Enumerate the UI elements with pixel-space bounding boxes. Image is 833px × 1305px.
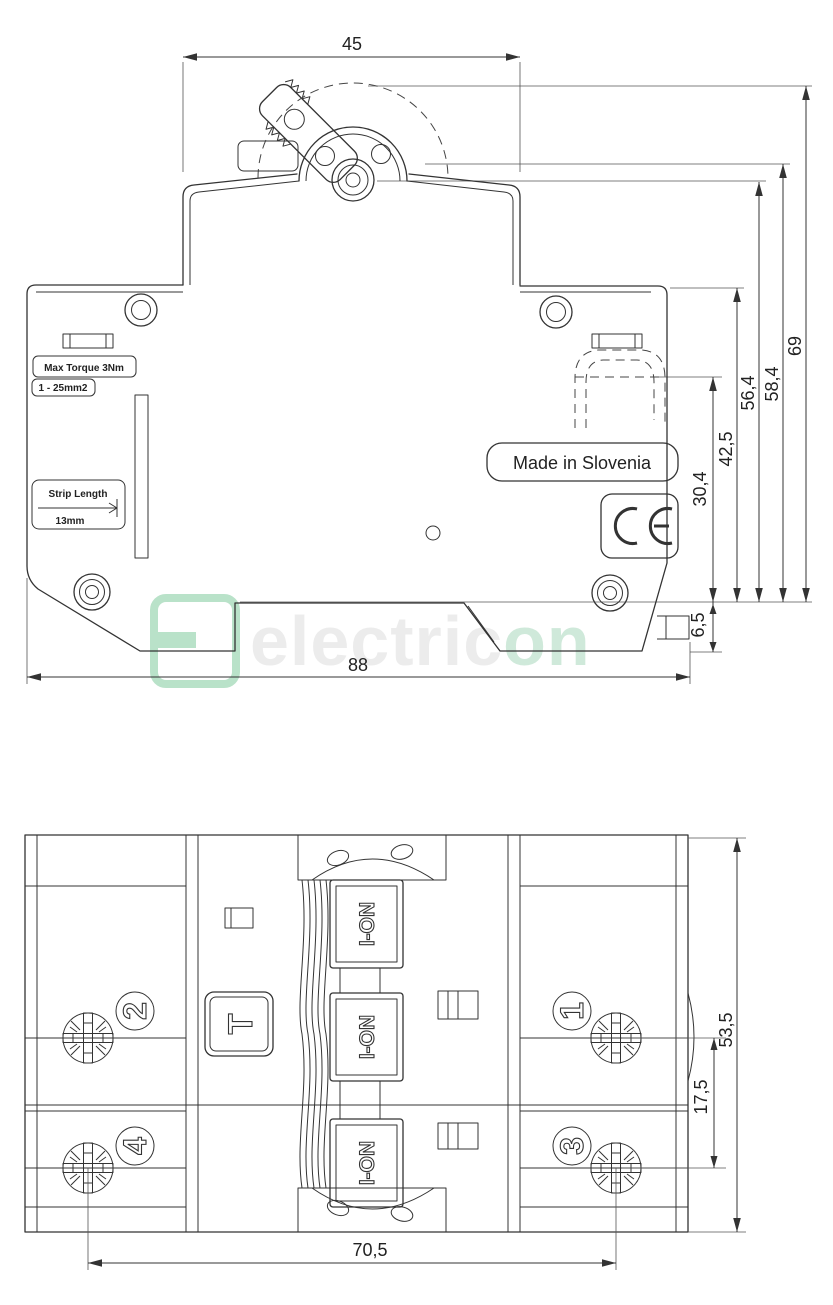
dim-17-label: 17,5 <box>691 1079 711 1114</box>
dim-row-offset: 17,5 <box>691 1038 718 1168</box>
dim-58-label: 58,4 <box>762 366 782 401</box>
dim-88-label: 88 <box>348 655 368 675</box>
test-button-label: T <box>222 1013 260 1034</box>
top-terminal-block <box>298 835 446 880</box>
wire-range-label: 1 - 25mm2 <box>39 383 88 394</box>
side-slot <box>135 395 148 558</box>
dim-module-width: 45 <box>183 34 520 61</box>
dimension-drawing: Max Torque 3Nm 1 - 25mm2 Strip Length 13… <box>0 0 833 1305</box>
terminal-screws: 2 1 4 3 <box>63 992 641 1193</box>
housing-hole <box>372 145 391 164</box>
handle-link <box>340 1081 380 1119</box>
indicator-windows <box>225 908 478 1149</box>
dim-pivot-height: 56,4 <box>738 182 763 602</box>
toggle-handle-1: I-ON <box>330 880 403 968</box>
handle-link <box>340 968 380 993</box>
side-view: Max Torque 3Nm 1 - 25mm2 Strip Length 13… <box>27 34 812 684</box>
lever-sweep-arc <box>258 83 448 178</box>
housing-hole <box>316 147 335 166</box>
dim-42-label: 42,5 <box>716 431 736 466</box>
dim-clip-depth: 6,5 <box>688 602 717 652</box>
strip-length-arrow-icon <box>38 499 117 517</box>
dim-terminal-height: 30,4 <box>690 377 717 602</box>
dim-device-height: 53,5 <box>716 838 741 1232</box>
toggle-handle-3: I-ON <box>330 1119 403 1207</box>
switch-state-label: I-ON <box>356 1015 379 1059</box>
side-bulge <box>688 993 694 1081</box>
pivot <box>332 159 374 201</box>
dim-body-height: 42,5 <box>716 288 741 602</box>
pole-number-4: 4 <box>117 1137 153 1155</box>
terminal-clamp-hidden <box>575 350 665 428</box>
center-hole <box>426 526 440 540</box>
print-labels: Max Torque 3Nm 1 - 25mm2 Strip Length 13… <box>32 356 678 558</box>
toggle-handle-2: I-ON <box>330 993 403 1081</box>
dim-30-label: 30,4 <box>690 471 710 506</box>
dim-45-label: 45 <box>342 34 362 54</box>
switch-column: I-ON I-ON I-ON T <box>205 835 478 1232</box>
strip-length-value: 13mm <box>56 516 85 527</box>
dim-56-label: 56,4 <box>738 375 758 410</box>
strip-length-box: Strip Length 13mm <box>32 480 125 529</box>
dim-screw-spacing: 70,5 <box>88 1240 616 1267</box>
dim-53-label: 53,5 <box>716 1012 736 1047</box>
vent-slots <box>63 334 642 558</box>
switch-tower <box>183 75 520 285</box>
pole-number-2: 2 <box>117 1002 153 1020</box>
pole-number-1: 1 <box>554 1002 590 1020</box>
switch-state-label: I-ON <box>356 902 379 946</box>
dim-lever-height: 58,4 <box>762 164 787 602</box>
dim-body-width: 88 <box>27 655 690 681</box>
max-torque-label: Max Torque 3Nm <box>44 363 124 374</box>
din-clip-tab <box>657 616 689 639</box>
switch-state-label: I-ON <box>356 1141 379 1185</box>
lever-stop-block <box>238 141 298 171</box>
flex-joint-lines <box>300 880 328 1188</box>
dim-69-label: 69 <box>785 336 805 356</box>
front-extension-lines <box>88 838 746 1270</box>
dim-6-label: 6,5 <box>688 612 708 637</box>
dim-overall-height: 69 <box>785 86 810 602</box>
extension-lines <box>27 62 812 684</box>
dim-70-label: 70,5 <box>352 1240 387 1260</box>
pole-number-3: 3 <box>554 1137 590 1155</box>
technical-drawing-page: electricon <box>0 0 833 1305</box>
bottom-terminal-block <box>298 1188 446 1232</box>
strip-length-title: Strip Length <box>49 489 108 500</box>
test-button: T <box>205 992 273 1056</box>
made-in-label: Made in Slovenia <box>513 453 652 473</box>
front-view: I-ON I-ON I-ON T <box>25 835 746 1270</box>
